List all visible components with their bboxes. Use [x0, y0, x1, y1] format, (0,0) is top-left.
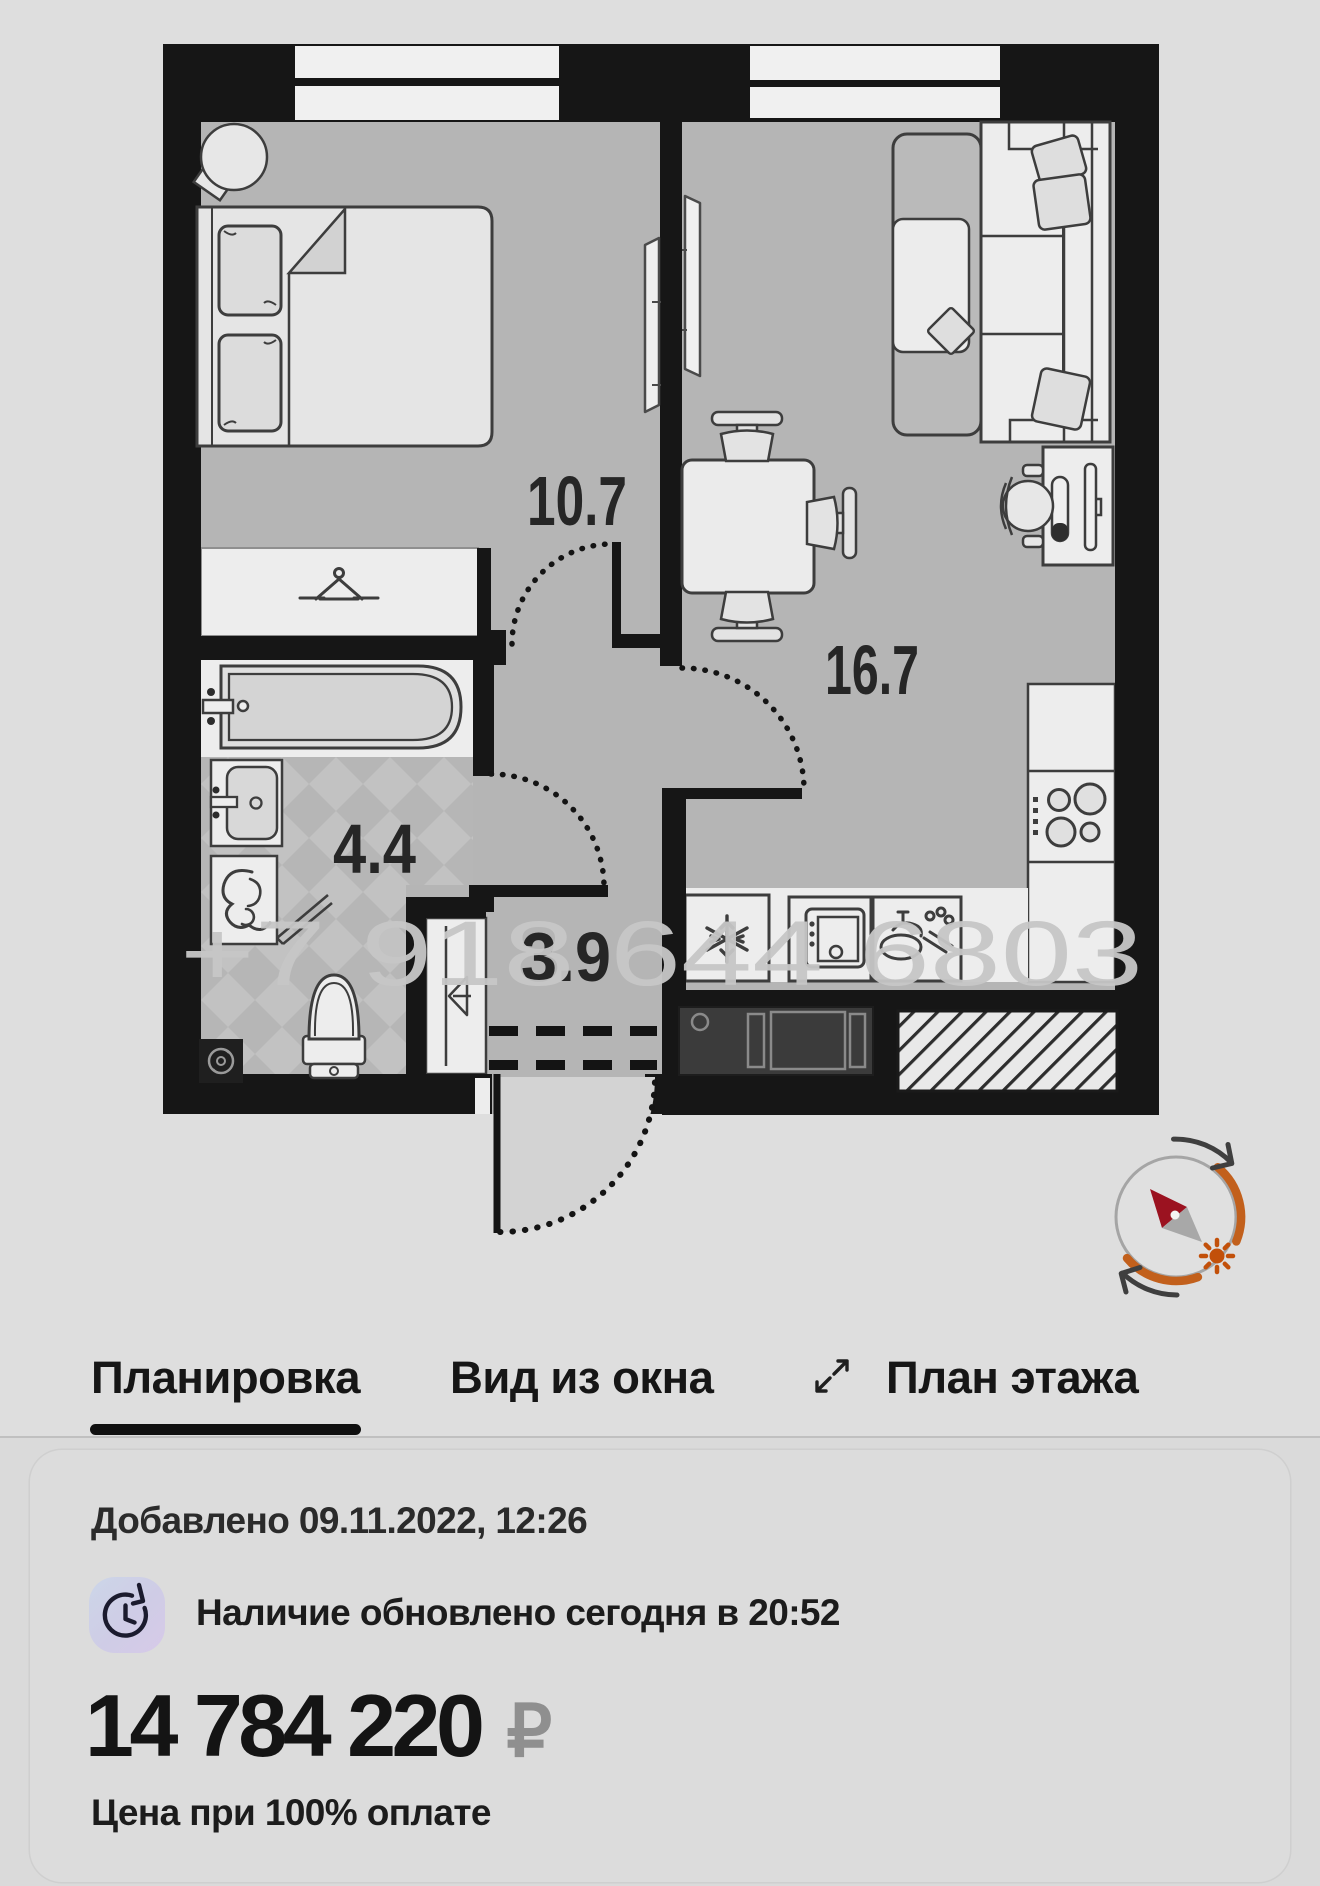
- svg-text:10.7: 10.7: [527, 462, 627, 540]
- svg-text:16.7: 16.7: [825, 631, 919, 709]
- svg-text:+7 918 644 6803: +7 918 644 6803: [180, 903, 1143, 1005]
- svg-text:4.4: 4.4: [333, 810, 416, 888]
